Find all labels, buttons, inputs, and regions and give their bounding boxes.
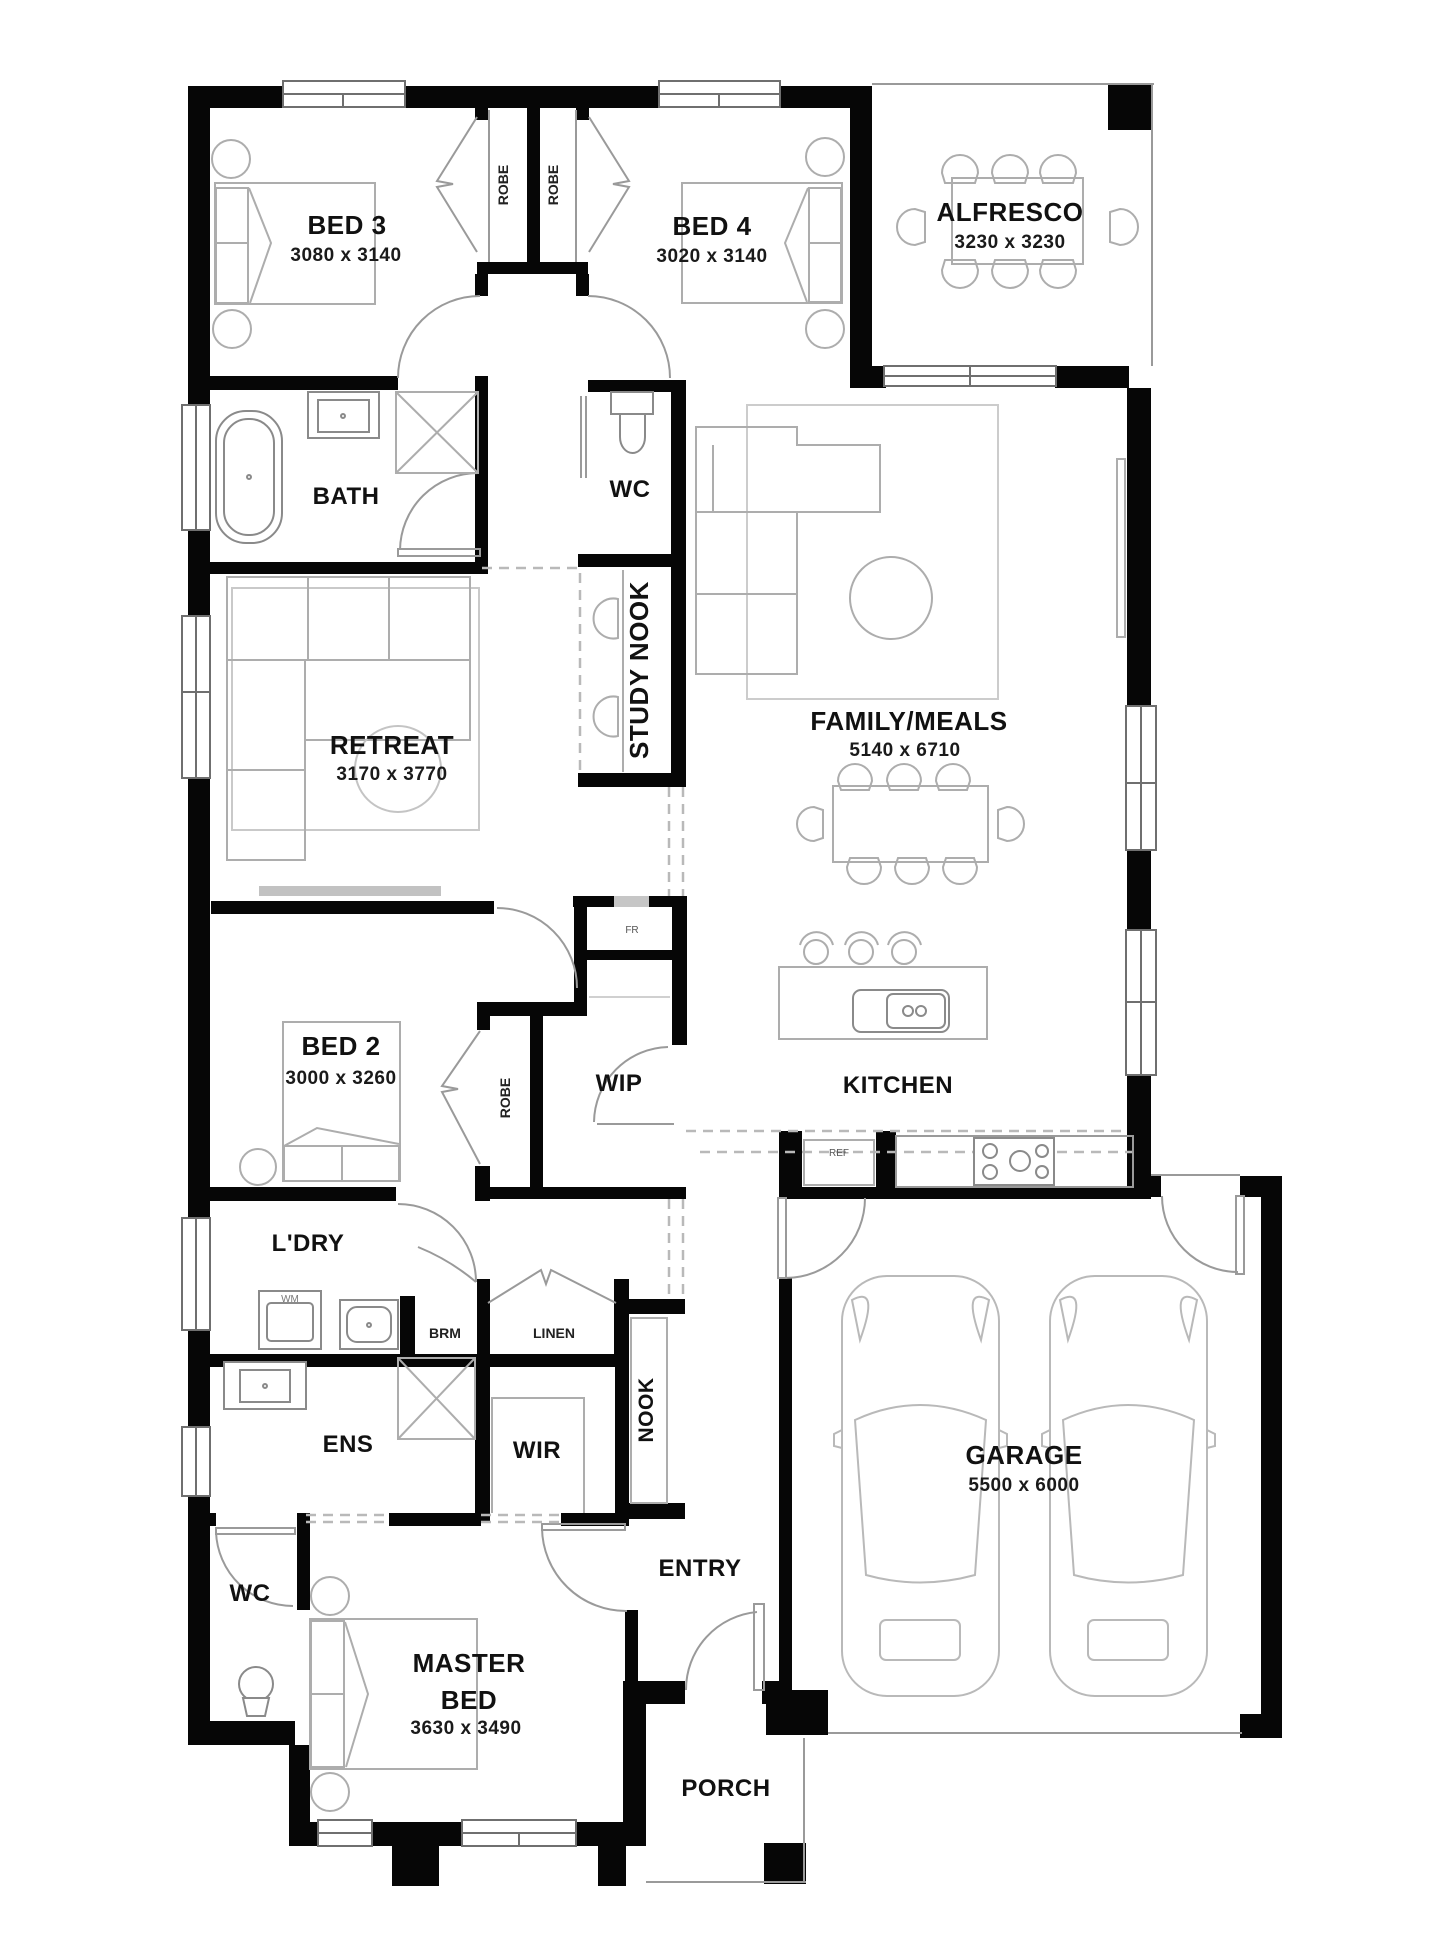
svg-text:FAMILY/MEALS: FAMILY/MEALS <box>810 706 1007 736</box>
svg-text:3080 x 3140: 3080 x 3140 <box>290 245 401 266</box>
svg-text:REF: REF <box>829 1148 849 1159</box>
svg-text:ROBE: ROBE <box>497 1078 513 1118</box>
svg-text:LINEN: LINEN <box>533 1325 575 1341</box>
svg-text:BRM: BRM <box>429 1325 461 1341</box>
svg-text:KITCHEN: KITCHEN <box>843 1072 953 1099</box>
svg-text:BED 3: BED 3 <box>307 210 386 240</box>
svg-text:ENS: ENS <box>323 1431 374 1458</box>
svg-text:BED 2: BED 2 <box>301 1031 380 1061</box>
svg-text:ENTRY: ENTRY <box>659 1555 742 1582</box>
svg-text:STUDY NOOK: STUDY NOOK <box>624 581 654 759</box>
svg-text:5140 x 6710: 5140 x 6710 <box>849 740 960 761</box>
svg-text:PORCH: PORCH <box>681 1775 770 1802</box>
svg-text:ROBE: ROBE <box>495 165 511 205</box>
svg-text:WM: WM <box>281 1294 299 1305</box>
svg-text:WIP: WIP <box>596 1070 643 1097</box>
svg-text:RETREAT: RETREAT <box>330 730 454 760</box>
svg-text:NOOK: NOOK <box>635 1378 658 1443</box>
svg-text:BATH: BATH <box>313 483 380 510</box>
svg-text:3170 x 3770: 3170 x 3770 <box>336 764 447 785</box>
svg-text:GARAGE: GARAGE <box>965 1440 1082 1470</box>
svg-text:3020 x 3140: 3020 x 3140 <box>656 246 767 267</box>
svg-text:ROBE: ROBE <box>545 165 561 205</box>
svg-text:MASTER: MASTER <box>413 1648 526 1678</box>
svg-text:ALFRESCO: ALFRESCO <box>937 197 1084 227</box>
svg-text:BED: BED <box>441 1685 497 1715</box>
svg-text:L'DRY: L'DRY <box>272 1230 345 1257</box>
svg-text:WIR: WIR <box>513 1437 561 1464</box>
svg-text:3230 x 3230: 3230 x 3230 <box>954 232 1065 253</box>
svg-text:5500 x 6000: 5500 x 6000 <box>968 1475 1079 1496</box>
svg-text:BED 4: BED 4 <box>672 211 751 241</box>
svg-text:WC: WC <box>230 1580 271 1607</box>
svg-text:3000 x 3260: 3000 x 3260 <box>285 1068 396 1089</box>
svg-text:FR: FR <box>625 925 638 936</box>
svg-text:WC: WC <box>610 476 651 503</box>
svg-text:3630 x 3490: 3630 x 3490 <box>410 1718 521 1739</box>
